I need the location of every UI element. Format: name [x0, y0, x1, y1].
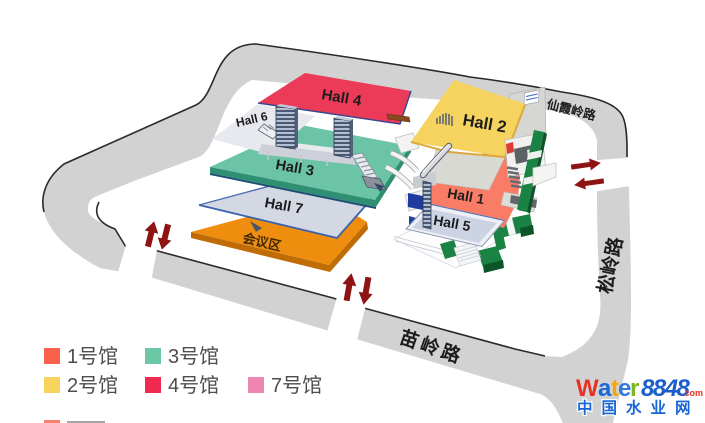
svg-text:a: a [598, 375, 612, 402]
svg-text:.com: .com [682, 388, 703, 398]
svg-text:3号馆: 3号馆 [168, 345, 219, 368]
svg-text:2号馆: 2号馆 [67, 374, 118, 397]
svg-text:4号馆: 4号馆 [168, 374, 219, 397]
svg-text:r: r [630, 375, 639, 402]
svg-text:中国水业网: 中国水业网 [577, 398, 700, 417]
svg-text:W: W [576, 375, 599, 402]
svg-text:1号馆: 1号馆 [67, 345, 118, 368]
svg-text:7号馆: 7号馆 [271, 374, 322, 397]
